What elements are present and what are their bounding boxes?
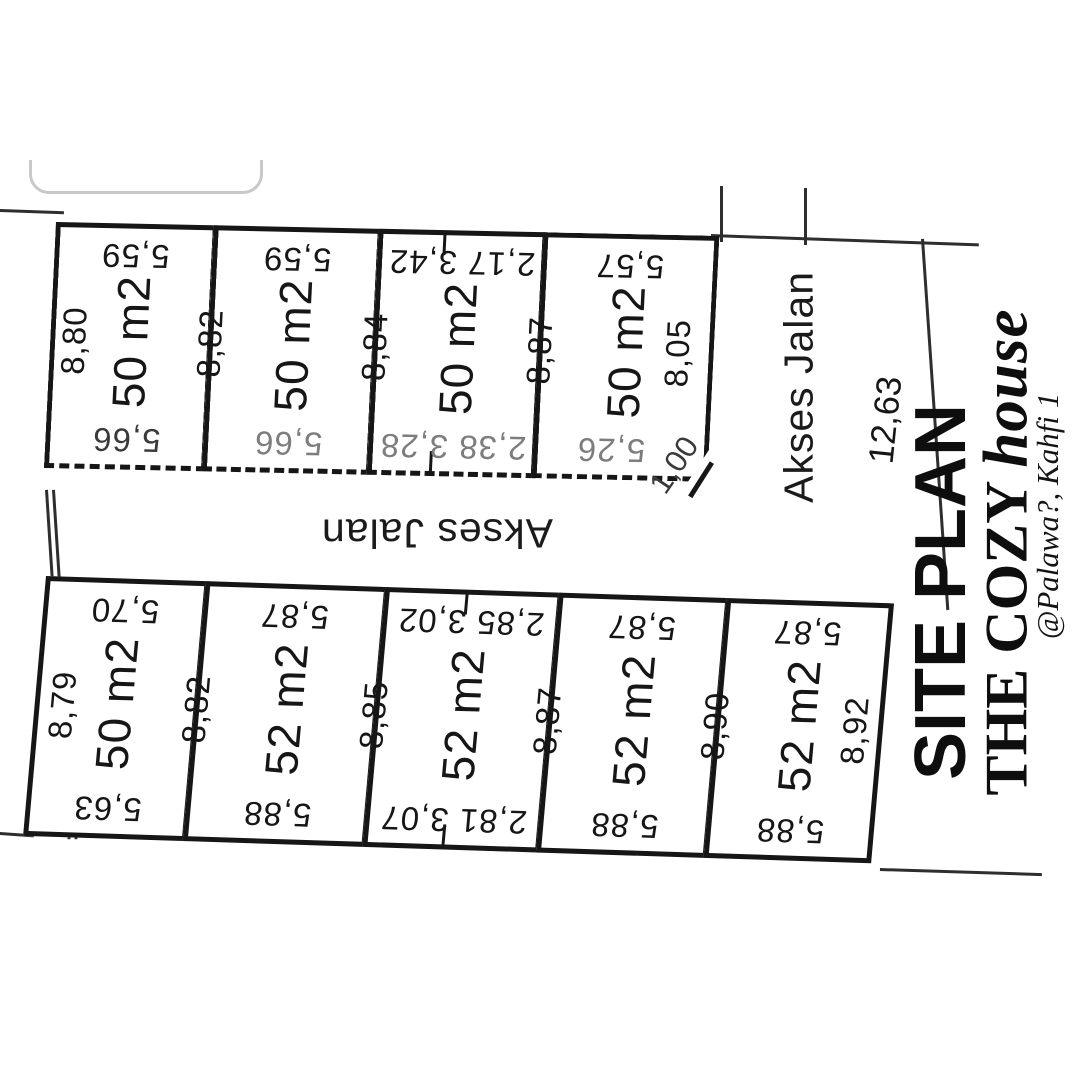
dim-label-top: 2,17 3,42 (387, 242, 535, 283)
dim-label-bottom: 5,63 (72, 788, 143, 828)
site-plan-canvas: 5,59 50 m2 5,66 5,59 50 m2 5,66 2,17 3,4… (0, 0, 1080, 1080)
plot-area-label: 52 m2 (766, 658, 832, 793)
dim-label-bottom: 2,81 3,07 (379, 798, 529, 841)
dim-label-top: 5,87 (772, 613, 843, 653)
side-dim-label: 8,87 (519, 316, 560, 385)
plot-row-north: 5,59 50 m2 5,66 5,59 50 m2 5,66 2,17 3,4… (44, 222, 723, 482)
plot-row-south: 5,70 50 m2 5,63 5,87 52 m2 5,88 2,85 3,0… (23, 576, 896, 863)
plot-area-label: 50 m2 (84, 636, 150, 771)
side-dim-label: 8,82 (189, 309, 230, 378)
side-dim-label: 8,84 (354, 312, 395, 381)
dim-label-top: 5,70 (89, 591, 160, 631)
brand-handle: @Palawa?, Kahfi 1 (1030, 393, 1066, 639)
plot-area-label: 50 m2 (101, 275, 161, 409)
dim-label-top: 5,59 (100, 236, 170, 275)
boundary-line-top-right (711, 234, 979, 246)
boundary-line-bottom-right (880, 868, 1042, 876)
road-label-horizontal: Akses Jalan (321, 510, 553, 557)
side-dim-label: 8,90 (693, 691, 737, 760)
boundary-tick-1 (720, 186, 723, 242)
dim-label-bottom: 5,88 (754, 811, 825, 851)
boundary-line-top-left (0, 209, 64, 214)
side-dim-label: 8,79 (41, 670, 85, 739)
plot-area-label: 52 m2 (601, 653, 667, 788)
dim-label-bottom: 2,38 3,28 (378, 426, 526, 467)
dim-label-top: 5,87 (606, 607, 677, 647)
road-label-vertical: Akses Jalan (776, 271, 823, 503)
dim-label-top: 5,87 (259, 596, 330, 636)
rounded-frame-border (29, 160, 263, 194)
dim-label-bottom: 5,88 (589, 805, 660, 845)
dim-label-top: 5,57 (595, 246, 665, 285)
plot-area-label: 50 m2 (427, 282, 487, 416)
dim-label-top: 5,59 (262, 239, 332, 278)
side-dim-label: 8,85 (352, 680, 396, 749)
plot-area-label: 50 m2 (596, 285, 656, 419)
dim-label-bottom: 5,88 (241, 794, 312, 834)
side-dim-label: 8,05 (657, 319, 698, 388)
cropped-rounded-frame (26, 160, 266, 196)
dim-label-bottom: 5,66 (253, 423, 323, 462)
plot-area-label: 50 m2 (262, 278, 322, 412)
side-dim-label: 8,82 (174, 674, 218, 743)
dim-label-bottom: 5,66 (91, 420, 161, 459)
dim-label-bottom: 5,26 (576, 430, 646, 469)
side-dim-label: 8,87 (526, 686, 570, 755)
dim-label-top: 2,85 3,02 (396, 600, 546, 643)
side-dim-label: 8,92 (833, 696, 877, 765)
boundary-tick-2 (804, 188, 807, 245)
side-dim-label: 8,80 (54, 306, 95, 375)
plot-area-label: 52 m2 (254, 642, 320, 777)
plot-area-label: 52 m2 (430, 648, 496, 783)
